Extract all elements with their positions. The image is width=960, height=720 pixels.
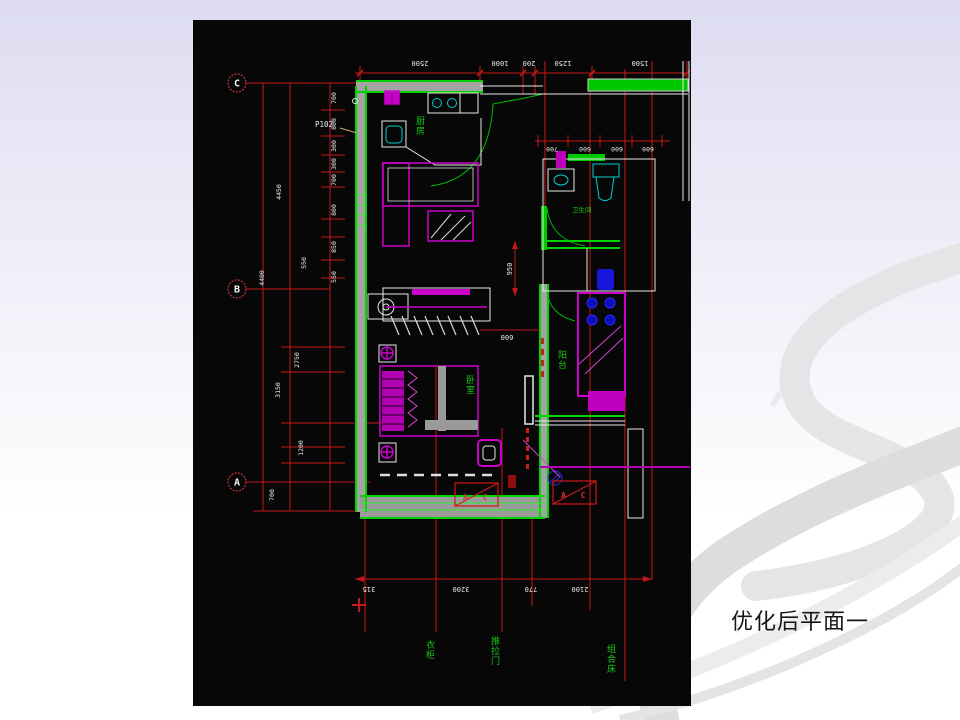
dim-label: 2750	[293, 352, 301, 368]
bottom-label-sliding-door: 推拉门	[489, 636, 498, 666]
dim-label: 950	[506, 263, 514, 276]
toilet-blue	[597, 269, 614, 290]
bath-sink	[548, 169, 574, 191]
dim-label: 300	[330, 140, 338, 152]
ac-label: A C	[463, 493, 492, 502]
top-right-wall	[588, 79, 688, 91]
room-label-bathroom: 卫生间	[572, 204, 592, 214]
dim-label: 300	[330, 158, 338, 170]
dim-label: 200	[523, 59, 536, 67]
column	[628, 429, 643, 518]
dim-label: 600	[611, 145, 623, 153]
grid-bubble-label-b: B	[234, 285, 240, 296]
basin	[554, 175, 568, 185]
dim-label: 1000	[492, 59, 509, 67]
dim-label: 700	[546, 145, 558, 153]
grid-bubbles: C B A	[228, 74, 246, 491]
sofa	[383, 163, 478, 206]
dim-label: 550	[330, 271, 338, 283]
dim-label: 700	[268, 489, 276, 501]
floor-plan-image: C B A 2500 1000 200 1250 1500 700 600 60…	[193, 20, 691, 706]
white-structure	[353, 61, 690, 518]
slide-caption: 优化后平面一	[731, 604, 901, 636]
dim-label: 2500	[412, 59, 429, 67]
leader-line	[340, 128, 357, 133]
toilet-bowl	[596, 177, 614, 201]
room-label-balcony: 阳台	[556, 350, 565, 370]
dim-label: 700	[330, 174, 338, 186]
bottom-label-wardrobe: 衣柜	[424, 640, 433, 660]
dim-label: 600	[501, 333, 514, 341]
room-label-bedroom: 卧室	[464, 375, 473, 395]
dim-label: 770	[525, 585, 538, 593]
dim-label: 700	[330, 92, 338, 104]
bench	[478, 440, 501, 466]
dim-label: 550	[300, 257, 308, 269]
grid-bubble-label-c: C	[234, 79, 240, 90]
dim-label: 4450	[275, 184, 283, 200]
red-marker	[508, 475, 516, 488]
dim-label: 1200	[297, 440, 305, 456]
dim-label: 800	[330, 204, 338, 216]
door-swings	[431, 94, 585, 321]
dim-label: 3200	[453, 585, 470, 593]
rug	[428, 211, 473, 241]
dim-label: 850	[330, 241, 338, 253]
dim-label: 2100	[572, 585, 589, 593]
dim-label: 3150	[274, 382, 282, 398]
burner	[433, 99, 442, 108]
ac-label: A C	[561, 491, 590, 500]
grid-bubble-label-a: A	[234, 478, 240, 489]
burner	[448, 99, 457, 108]
bottom-label-combo-bed: 组合床	[605, 644, 614, 674]
dim-label: 315	[363, 585, 376, 593]
dim-label: 1250	[555, 59, 572, 67]
dim-label: 600	[642, 145, 654, 153]
washer-burners	[587, 298, 615, 325]
bedroom-window	[525, 376, 533, 424]
dim-label: 4400	[258, 270, 266, 286]
wall-tag-p102: P102	[315, 120, 333, 129]
balcony-cabinet	[578, 293, 625, 396]
room-label-kitchen: 厨房	[414, 116, 423, 136]
dim-label: 600	[579, 145, 591, 153]
toilet-tank	[593, 164, 619, 177]
dim-label: 1500	[632, 59, 649, 67]
